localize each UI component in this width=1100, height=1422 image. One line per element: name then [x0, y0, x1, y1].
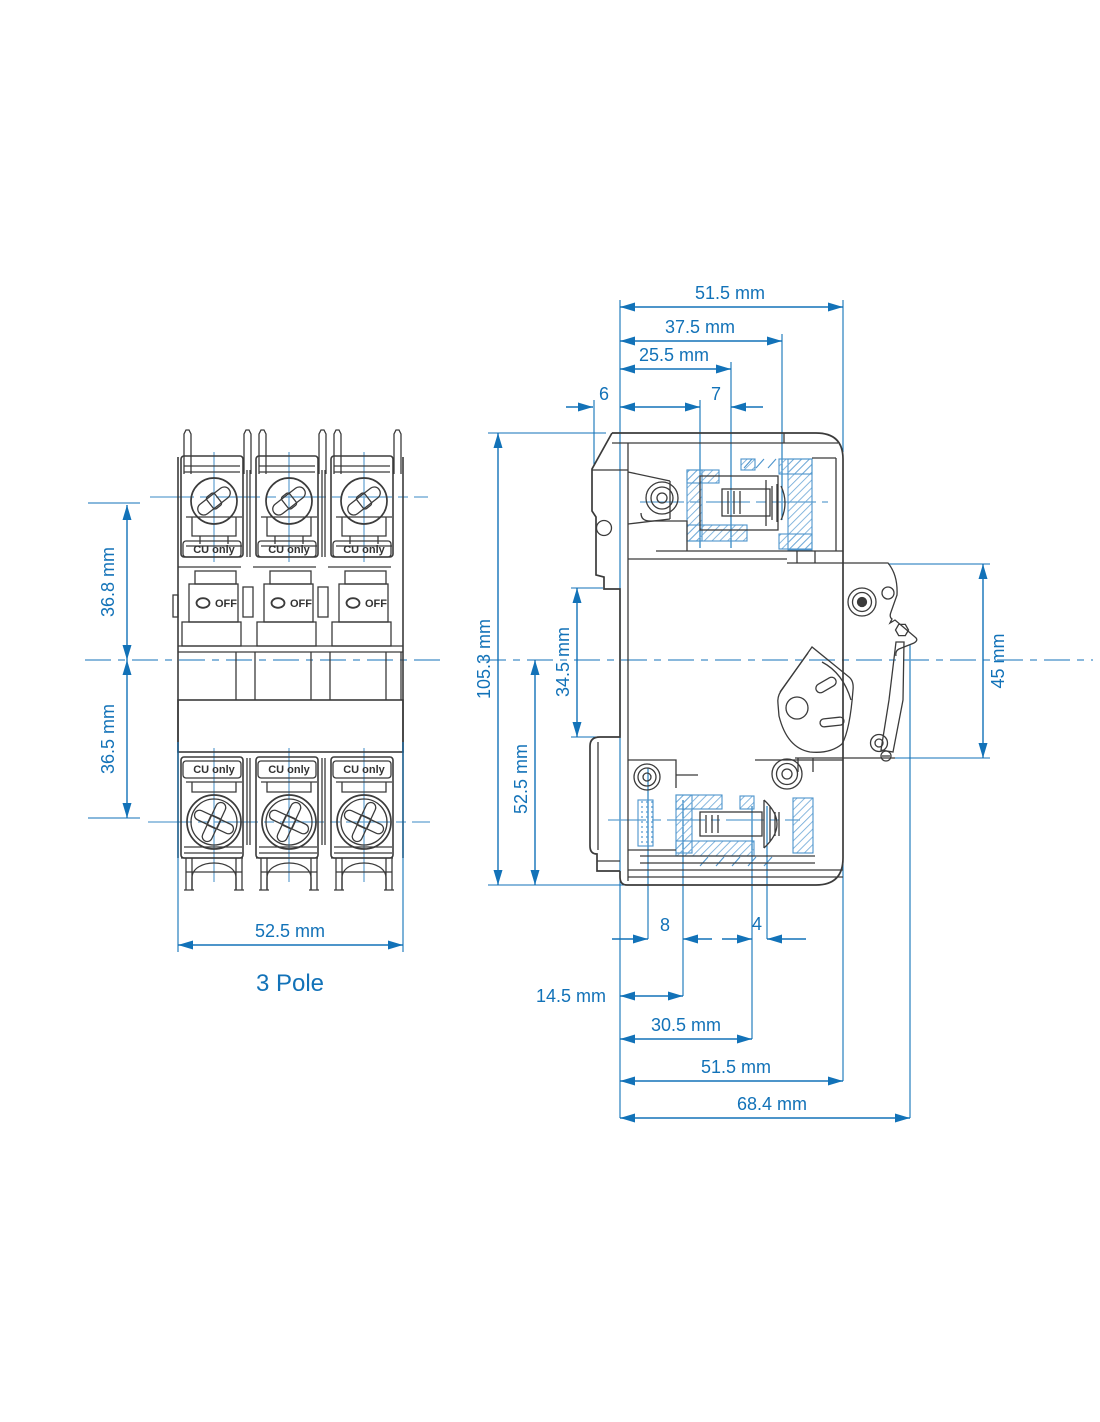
dim-side-bottom-width: 51.5 mm	[701, 1057, 771, 1077]
cu-only-label-top-3: CU only	[343, 544, 385, 556]
dim-side-lower-height: 52.5 mm	[511, 744, 531, 814]
dim-side-d14-5: 14.5 mm	[536, 986, 606, 1006]
dim-side-mechanism: 45 mm	[988, 633, 1008, 688]
dim-side-d30-5: 30.5 mm	[651, 1015, 721, 1035]
dim-side-top-mid: 37.5 mm	[665, 317, 735, 337]
off-label-3: OFF	[365, 598, 387, 610]
off-label-1: OFF	[215, 598, 237, 610]
dim-side-depth: 68.4 mm	[737, 1094, 807, 1114]
drawing-canvas: CU only CU only CU only CU only CU only …	[0, 0, 1100, 1422]
dim-side-top-inner: 25.5 mm	[639, 345, 709, 365]
dim-side-d4: 4	[752, 914, 762, 934]
dim-front-width: 52.5 mm	[255, 921, 325, 941]
dim-front-upper-height: 36.8 mm	[98, 547, 118, 617]
dim-side-d8: 8	[660, 915, 670, 935]
cu-only-label-bottom-2: CU only	[268, 764, 310, 776]
front-view: CU only CU only CU only CU only CU only …	[85, 430, 447, 997]
cu-only-label-bottom-1: CU only	[193, 764, 235, 776]
side-dimensions: 51.5 mm 37.5 mm 25.5 mm 6 7 105.3 mm 34.…	[474, 283, 1008, 1123]
technical-drawing-page: CU only CU only CU only CU only CU only …	[0, 0, 1100, 1422]
dim-side-recess: 34.5 mm	[553, 627, 573, 697]
side-view: 51.5 mm 37.5 mm 25.5 mm 6 7 105.3 mm 34.…	[474, 283, 1093, 1123]
dim-side-height: 105.3 mm	[474, 619, 494, 699]
dim-side-top-overall: 51.5 mm	[695, 283, 765, 303]
off-label-2: OFF	[290, 598, 312, 610]
front-view-caption: 3 Pole	[256, 970, 324, 997]
dim-front-lower-height: 36.5 mm	[98, 704, 118, 774]
front-dimensions: 36.8 mm 36.5 mm 52.5 mm 3 Pole	[88, 503, 403, 997]
dim-side-opening: 7	[711, 384, 721, 404]
cu-only-label-top-1: CU only	[193, 544, 235, 556]
cu-only-label-bottom-3: CU only	[343, 764, 385, 776]
dim-side-flange: 6	[599, 384, 609, 404]
cu-only-label-top-2: CU only	[268, 544, 310, 556]
